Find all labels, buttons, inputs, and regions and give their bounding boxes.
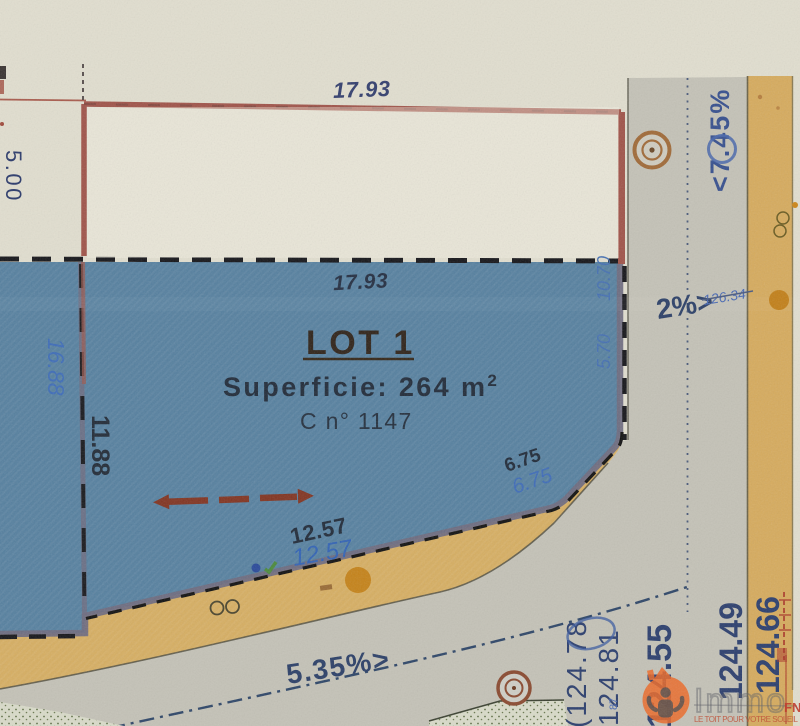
svg-text:(124.78: (124.78 xyxy=(561,619,592,726)
svg-text:5.00: 5.00 xyxy=(1,150,26,203)
svg-text:17.93: 17.93 xyxy=(333,76,391,103)
svg-text:C n° 1147: C n° 1147 xyxy=(300,408,413,434)
svg-text:16.88: 16.88 xyxy=(43,338,69,396)
svg-text:FN: FN xyxy=(784,700,800,715)
svg-text:17.93: 17.93 xyxy=(332,269,388,295)
svg-text:87: 87 xyxy=(608,698,620,710)
svg-text:10.70: 10.70 xyxy=(594,256,614,301)
svg-text:Superficie: 264 m2: Superficie: 264 m2 xyxy=(223,371,499,402)
svg-text:11.88: 11.88 xyxy=(86,415,114,476)
svg-text:5.70: 5.70 xyxy=(594,334,614,369)
svg-text:LOT 1: LOT 1 xyxy=(306,324,415,362)
svg-text:124.81: 124.81 xyxy=(593,628,624,726)
svg-text:LE TOIT POUR VOTRE SOLEIL: LE TOIT POUR VOTRE SOLEIL xyxy=(694,715,799,724)
svg-text:124.66: 124.66 xyxy=(750,596,786,694)
